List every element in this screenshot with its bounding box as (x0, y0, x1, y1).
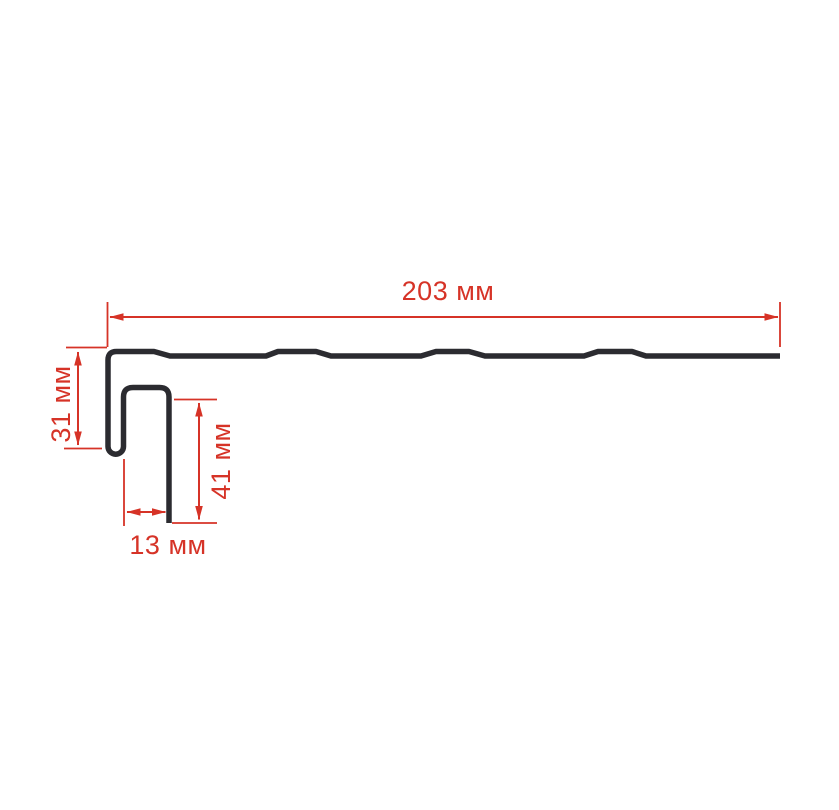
dimension-label-leg-height: 41 мм (206, 422, 236, 499)
dimension-left-hook-height: 31 мм (46, 348, 107, 449)
dimension-leg-height: 41 мм (172, 400, 236, 524)
dimension-total-width: 203 мм (108, 276, 781, 347)
dimension-label-total-width: 203 мм (402, 276, 495, 306)
profile-drawing-canvas: 203 мм 31 мм 41 мм 13 мм (0, 0, 839, 810)
dimension-label-left-hook-height: 31 мм (46, 365, 76, 442)
dimension-channel-width: 13 мм (124, 459, 207, 560)
profile-diagram-svg: 203 мм 31 мм 41 мм 13 мм (0, 0, 839, 810)
dimension-label-channel-width: 13 мм (129, 530, 206, 560)
